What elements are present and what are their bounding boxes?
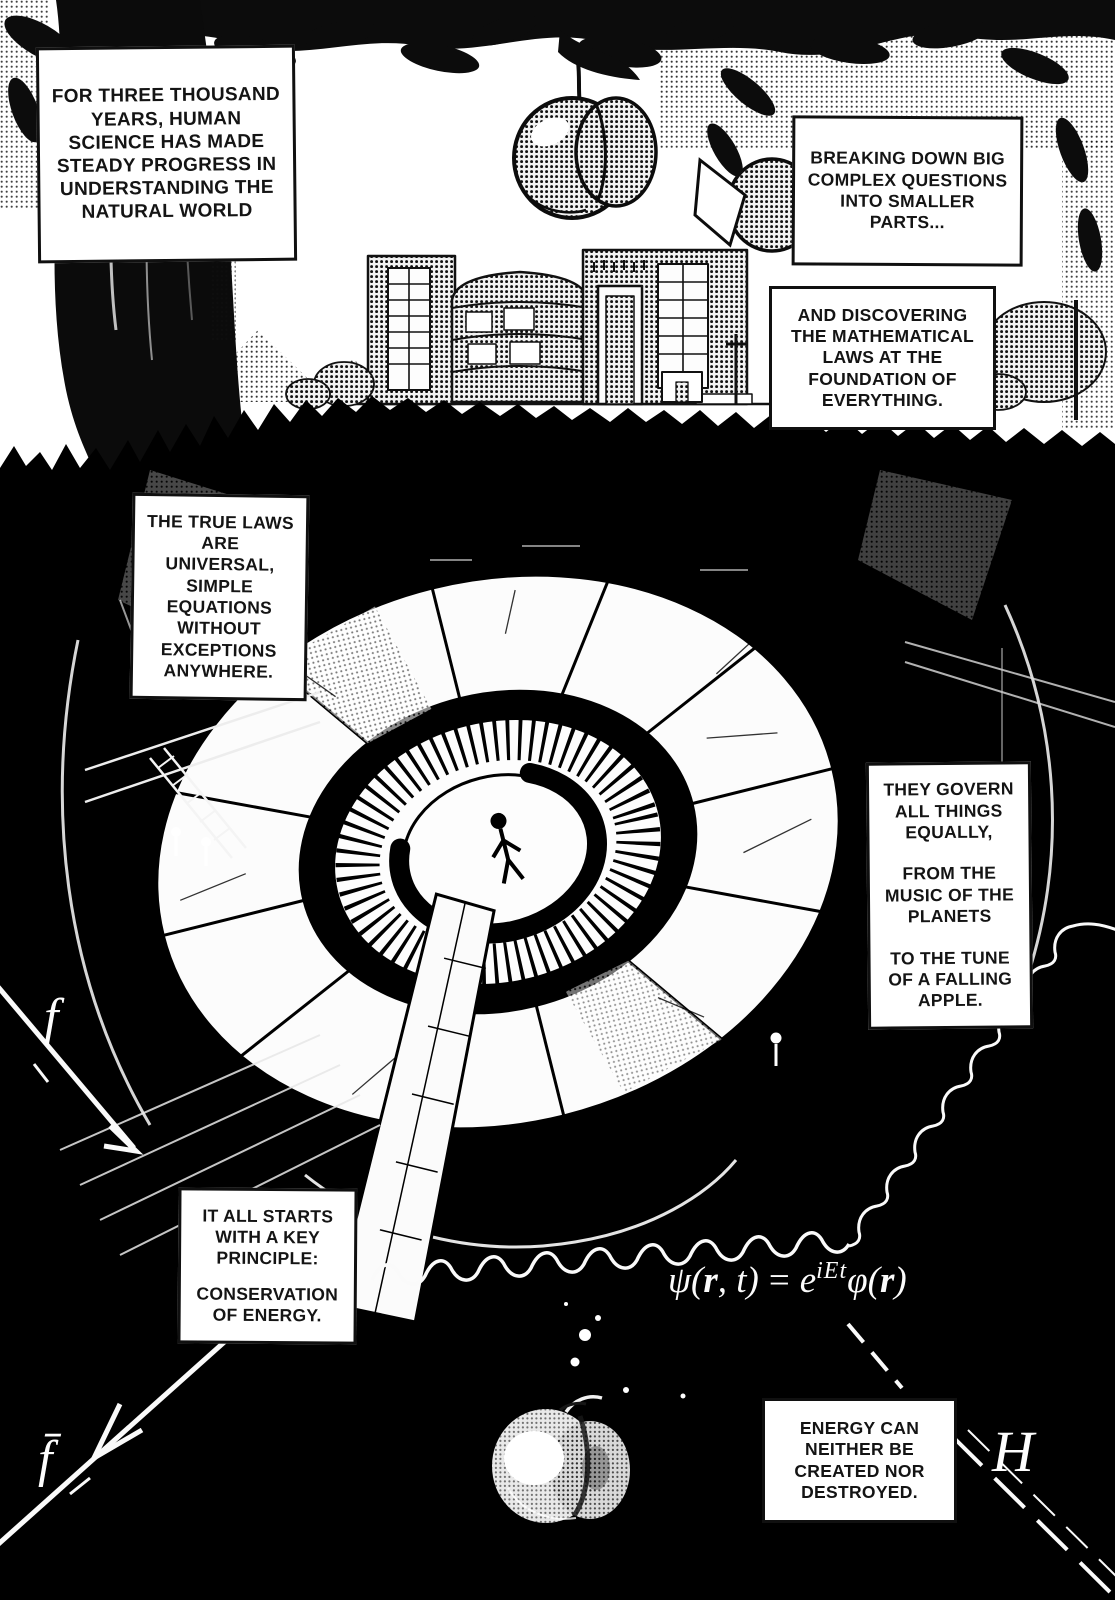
equation-rhs-open: φ( — [847, 1260, 880, 1301]
caption-key-principle: IT ALL STARTS WITH A KEY PRINCIPLE: CONS… — [177, 1187, 357, 1344]
caption-text: CONSERVATION OF ENERGY. — [191, 1283, 344, 1327]
caption-text: TO THE TUNE OF A FALLING APPLE. — [880, 947, 1020, 1012]
caption-text: AND DISCOVERING THE MATHEMATICAL LAWS AT… — [782, 305, 983, 412]
caption-text: IT ALL STARTS WITH A KEY PRINCIPLE: — [191, 1205, 344, 1270]
equation-lhs-vector: r — [703, 1260, 717, 1301]
equation-rhs-vector: r — [880, 1260, 894, 1301]
higgs-label: H — [992, 1418, 1034, 1485]
caption-they-govern: THEY GOVERN ALL THINGS EQUALLY, FROM THE… — [866, 761, 1033, 1029]
fermion-label: f — [44, 988, 58, 1047]
caption-text: THEY GOVERN ALL THINGS EQUALLY, — [879, 779, 1019, 844]
apple-on-branch — [514, 62, 656, 218]
wavefunction-equation: ψ(r, t)=eiEtφ(r) — [668, 1258, 907, 1302]
caption-true-laws: THE TRUE LAWS ARE UNIVERSAL, SIMPLE EQUA… — [130, 493, 310, 701]
equation-exponent: iEt — [816, 1258, 847, 1284]
antifermion-label: f̄ — [38, 1430, 52, 1489]
caption-text: ENERGY CAN NEITHER BE CREATED NOR DESTRO… — [775, 1418, 944, 1503]
caption-text: FROM THE MUSIC OF THE PLANETS — [880, 863, 1020, 928]
caption-discovering: AND DISCOVERING THE MATHEMATICAL LAWS AT… — [769, 286, 996, 430]
comic-page: FOR THREE THOUSAND YEARS, HUMAN SCIENCE … — [0, 0, 1115, 1600]
caption-conservation: ENERGY CAN NEITHER BE CREATED NOR DESTRO… — [762, 1398, 957, 1523]
caption-breaking-down: BREAKING DOWN BIG COMPLEX QUESTIONS INTO… — [792, 115, 1024, 266]
equation-equals: = — [759, 1260, 800, 1301]
equation-base: e — [800, 1260, 816, 1301]
caption-text: FOR THREE THOUSAND YEARS, HUMAN SCIENCE … — [49, 83, 283, 224]
equation-lhs-open: ψ( — [668, 1260, 703, 1301]
caption-text: THE TRUE LAWS ARE UNIVERSAL, SIMPLE EQUA… — [143, 511, 296, 684]
equation-lhs-close: , t) — [718, 1260, 759, 1301]
equation-rhs-close: ) — [894, 1260, 906, 1301]
caption-intro: FOR THREE THOUSAND YEARS, HUMAN SCIENCE … — [36, 45, 297, 264]
caption-text: BREAKING DOWN BIG COMPLEX QUESTIONS INTO… — [805, 148, 1010, 234]
